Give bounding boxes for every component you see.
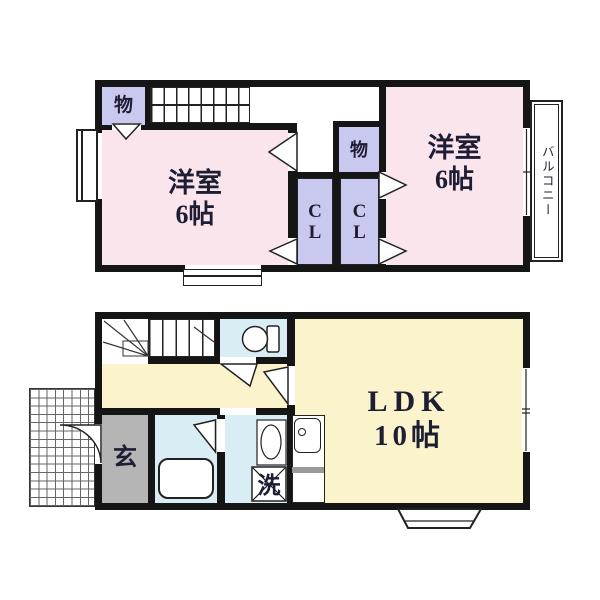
window-sill — [183, 269, 262, 286]
door-opening — [287, 366, 295, 405]
west-bedroom-size: 6帖 — [102, 200, 288, 230]
laundry-label: 洗 — [250, 469, 288, 501]
window-pane-line — [184, 275, 261, 277]
door-opening — [220, 357, 256, 364]
staircase-winder — [102, 319, 148, 357]
counter-divider — [292, 467, 324, 473]
hallway — [102, 364, 287, 408]
door-opening — [379, 238, 386, 264]
east-bedroom-name: 洋室 — [386, 133, 523, 163]
staircase-2f — [150, 87, 250, 123]
staircase-1f — [148, 319, 215, 357]
door-opening — [288, 238, 297, 265]
bay-window — [76, 129, 98, 202]
ldk-name: LDK — [295, 386, 523, 418]
floor-plan-canvas: 洋室 6帖 洋室 6帖 物 物 CL CL バルコニー LDK 10帖 玄 洗 — [0, 0, 600, 600]
toilet-room — [220, 319, 287, 357]
door-opening — [112, 123, 141, 130]
window-opening — [522, 368, 530, 452]
west-closet-label: CL — [297, 178, 333, 265]
window-pane-line — [81, 131, 83, 200]
east-bedroom-size: 6帖 — [386, 165, 523, 195]
balcony-label: バルコニー — [530, 103, 563, 259]
east-storage-label: 物 — [339, 136, 379, 163]
wall-segment — [333, 178, 340, 265]
door-opening — [220, 408, 256, 415]
bathroom — [155, 415, 217, 503]
door-opening — [288, 133, 297, 171]
door-opening — [379, 172, 386, 199]
west-storage-label: 物 — [102, 92, 145, 119]
door-opening — [217, 419, 225, 452]
ldk-size: 10帖 — [295, 420, 523, 452]
entrance-porch-hatch — [29, 388, 95, 507]
wall-segment — [148, 415, 155, 503]
wall-segment — [148, 357, 287, 364]
entrance-door-opening — [95, 424, 102, 464]
exterior-step — [398, 509, 481, 528]
balcony-door-opening — [523, 128, 530, 216]
east-closet-label: CL — [340, 178, 379, 265]
wall-segment — [102, 408, 287, 415]
entrance-label: 玄 — [102, 443, 148, 473]
west-bedroom-name: 洋室 — [102, 168, 288, 198]
stair-mid-line — [151, 104, 249, 106]
